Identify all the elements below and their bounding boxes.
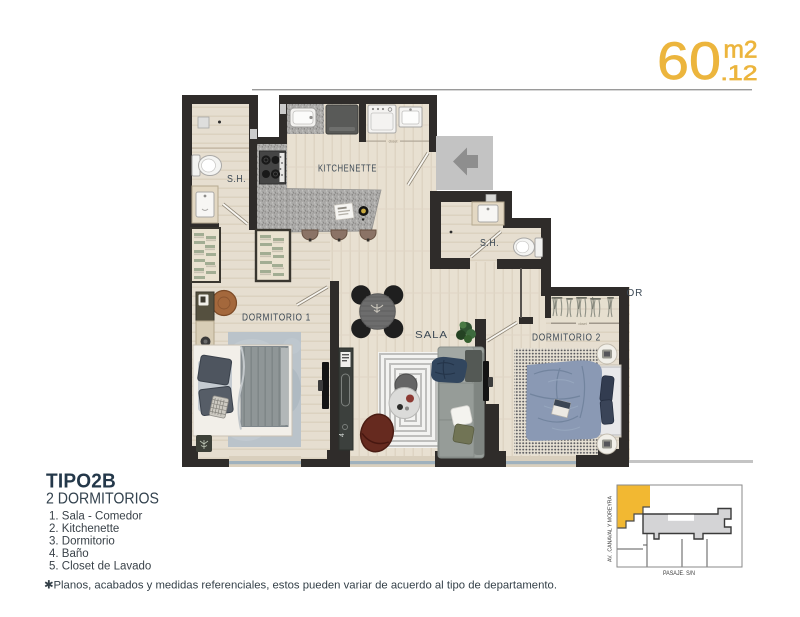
svg-text:OR: OR [627,288,644,299]
svg-text:closet: closet [578,322,586,326]
svg-text:SALA: SALA [415,330,448,341]
svg-text:S.H.: S.H. [480,238,499,249]
svg-text:4. Baño: 4. Baño [49,548,89,560]
svg-text:PASAJE. S/N: PASAJE. S/N [663,570,695,577]
svg-text:3. Dormitorio: 3. Dormitorio [49,536,115,548]
svg-text:60: 60 [657,32,721,91]
svg-text:m2: m2 [724,37,758,64]
svg-text:1. Sala - Comedor: 1. Sala - Comedor [49,511,142,523]
svg-text:2. Kitchenette: 2. Kitchenette [49,523,119,535]
svg-text:closet: closet [389,140,398,144]
svg-text:DORMITORIO 2: DORMITORIO 2 [532,333,601,344]
svg-text:AV. .CANAVAL Y MOREYRA: AV. .CANAVAL Y MOREYRA [608,496,614,562]
svg-text:S.H.: S.H. [227,174,246,185]
svg-text:2 DORMITORIOS: 2 DORMITORIOS [46,491,159,508]
svg-text:DORMITORIO 1: DORMITORIO 1 [242,313,311,324]
svg-text:4: 4 [339,433,346,437]
svg-text:KITCHENETTE: KITCHENETTE [318,164,377,175]
svg-text:✱Planos, acabados y medidas re: ✱Planos, acabados y medidas referenciale… [44,580,557,592]
svg-text:.12: .12 [721,62,758,85]
svg-text:5. Closet de Lavado: 5. Closet de Lavado [49,561,151,573]
svg-text:TIPO2B: TIPO2B [46,470,116,493]
